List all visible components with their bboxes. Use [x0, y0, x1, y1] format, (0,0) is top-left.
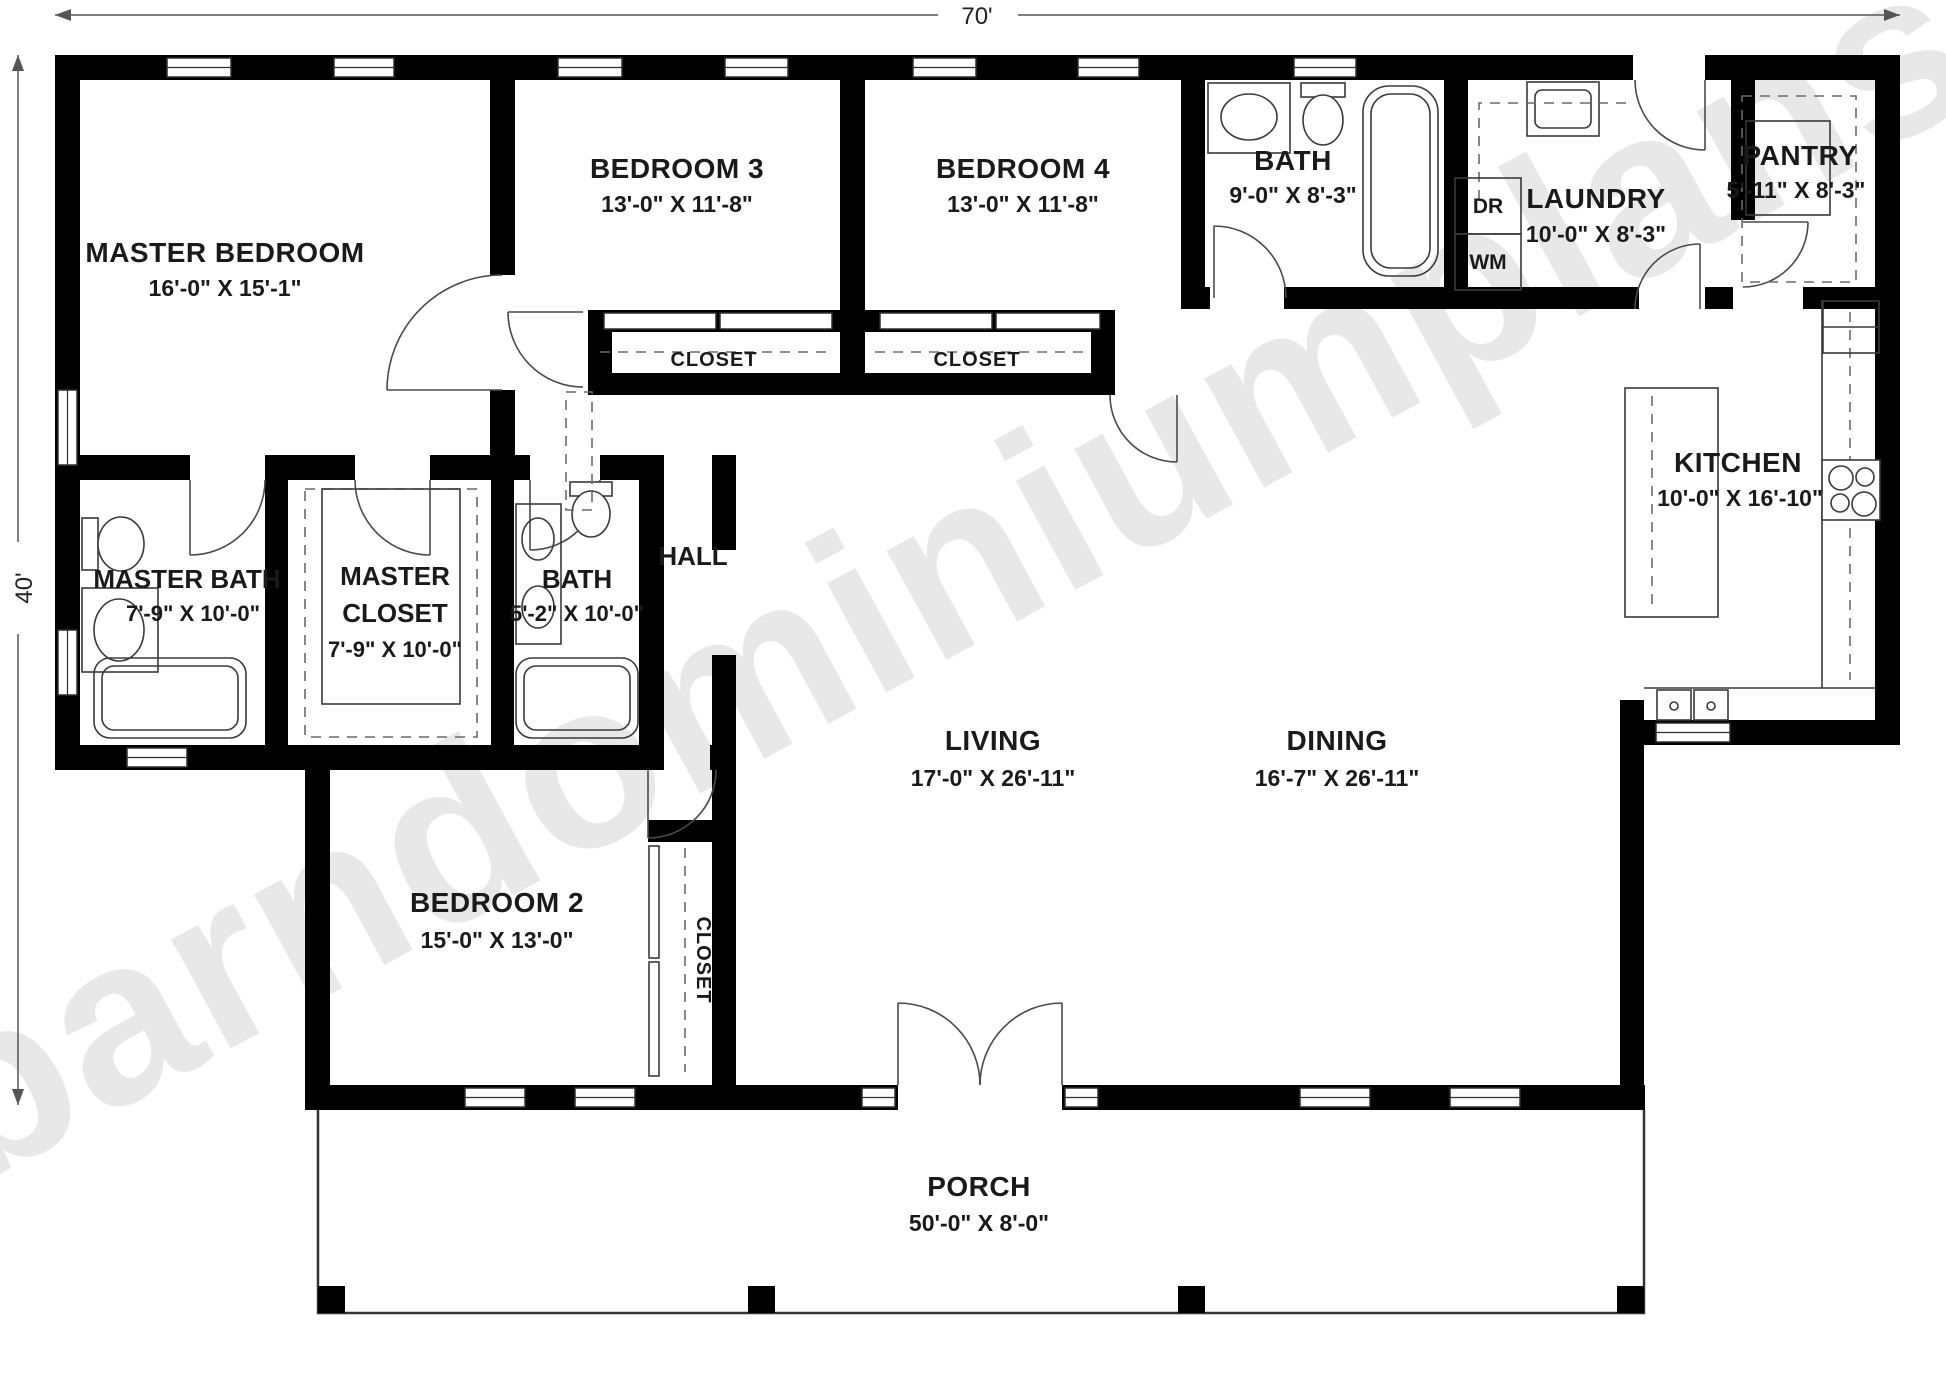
room-label-pantry: PANTRY	[1743, 140, 1858, 171]
closet-label-b2: CLOSET	[692, 916, 714, 1003]
window	[465, 1088, 525, 1107]
sliding-door-panel	[604, 313, 716, 329]
dim-label-width: 70'	[961, 3, 992, 30]
room-label-bedroom-4: BEDROOM 4	[936, 153, 1110, 184]
wall-bath-laundry	[1444, 80, 1468, 309]
sink-basin	[1221, 94, 1277, 140]
window	[167, 58, 231, 77]
floor-plan-drawing: barndominiumplans.com 70' 40'	[0, 0, 1946, 1373]
bathtub-inner	[102, 666, 238, 730]
room-dims-bath-2: 5'-2" X 10'-0"	[510, 601, 644, 626]
window	[58, 630, 77, 695]
dryer-label: DR	[1473, 195, 1503, 218]
room-dims-bedroom-4: 13'-0" X 11'-8"	[947, 191, 1099, 217]
room-label-living: LIVING	[945, 725, 1041, 756]
window	[1300, 1088, 1370, 1107]
room-label-laundry: LAUNDRY	[1526, 183, 1665, 214]
wall-hall-living-a	[712, 455, 736, 550]
room-dims-bath: 9'-0" X 8'-3"	[1229, 182, 1356, 208]
room-dims-kitchen: 10'-0" X 16'-10"	[1657, 485, 1823, 511]
room-dims-dining: 16'-7" X 26'-11"	[1255, 765, 1419, 791]
toilet-bowl	[572, 491, 610, 537]
room-label-master-bedroom: MASTER BEDROOM	[85, 237, 364, 268]
dim-label-depth: 40'	[11, 572, 38, 603]
window	[862, 1088, 895, 1107]
room-label-dining: DINING	[1287, 725, 1388, 756]
room-label-bedroom-2: BEDROOM 2	[410, 887, 584, 918]
porch-post	[1617, 1286, 1644, 1313]
closet-shelf	[322, 489, 460, 704]
sink-basin	[522, 518, 554, 560]
kitchen-sink-left	[1657, 690, 1691, 720]
toilet-tank	[82, 518, 98, 570]
wall-right	[1875, 55, 1900, 745]
wall-master-right-a	[490, 80, 515, 275]
wall-bath-bottom-a	[1181, 287, 1210, 309]
porch-post	[1178, 1286, 1205, 1313]
window	[913, 58, 976, 77]
door-bedroom3	[508, 312, 583, 387]
wall-closet-b3-bottom	[588, 373, 840, 395]
room-dims-master-bath: 7'-9" X 10'-0"	[126, 601, 260, 626]
sliding-door-panel	[720, 313, 832, 329]
window	[334, 58, 394, 77]
room-label-master-bath: MASTER BATH	[93, 564, 280, 594]
door-master-bedroom	[387, 275, 502, 390]
room-dims-laundry: 10'-0" X 8'-3"	[1526, 221, 1666, 247]
wall-mbath-mcloset	[265, 480, 288, 745]
floor-plan-page: barndominiumplans.com 70' 40'	[0, 0, 1946, 1373]
window	[127, 748, 187, 767]
room-dims-pantry: 5'-11" X 8'-3"	[1727, 177, 1866, 203]
closet-b4-fittings	[875, 313, 1100, 352]
room-label-kitchen: KITCHEN	[1674, 447, 1802, 478]
door-master-bath	[190, 480, 265, 555]
window	[575, 1088, 635, 1107]
room-label-hall: HALL	[658, 541, 727, 571]
dim-arrow-top	[12, 55, 24, 71]
room-label-bath: BATH	[1254, 145, 1332, 176]
wall-laundry-stub	[1705, 287, 1733, 309]
wall-corner-b2	[710, 745, 736, 770]
toilet-bowl	[98, 517, 144, 571]
wall-master-bottom-b	[265, 455, 355, 480]
room-label-bath-2: BATH	[542, 564, 612, 594]
closet-label-b3: CLOSET	[670, 349, 757, 371]
wall-b3-b4	[840, 80, 865, 395]
porch-post	[318, 1286, 345, 1313]
wall-closet-b4-bottom	[865, 373, 1115, 395]
wall-living-bedroom2	[712, 770, 736, 1110]
window	[58, 390, 77, 465]
room-dims-porch: 50'-0" X 8'-0"	[909, 1210, 1049, 1236]
closet-b3-fittings	[600, 313, 832, 352]
window	[558, 58, 622, 77]
closet-b2-fittings	[649, 846, 685, 1076]
sliding-door-panel	[880, 313, 992, 329]
room-dims-master-closet: 7'-9" X 10'-0"	[328, 637, 462, 662]
window	[1450, 1088, 1520, 1107]
wall-hall-living-b	[712, 655, 736, 745]
wall-top-right	[1705, 55, 1900, 80]
window	[1065, 1088, 1098, 1107]
bathtub	[94, 658, 246, 738]
washer-label: WM	[1469, 251, 1506, 274]
window	[1294, 58, 1356, 77]
sliding-door-panel	[649, 962, 659, 1076]
wall-top-left	[55, 55, 1633, 80]
wall-pantry-bottom	[1803, 287, 1876, 309]
wall-b4-bath	[1181, 80, 1205, 298]
room-dims-living: 17'-0" X 26'-11"	[911, 765, 1075, 791]
stove	[1822, 460, 1880, 520]
room-dims-master-bedroom: 16'-0" X 15'-1"	[149, 275, 302, 301]
wall-bath-bottom-b	[1284, 287, 1444, 309]
room-label-master-closet-line2: CLOSET	[342, 598, 448, 628]
master-bath-fixtures	[82, 517, 246, 738]
room-dims-bedroom-2: 15'-0" X 13'-0"	[421, 927, 574, 953]
porch-post	[748, 1286, 775, 1313]
window	[1078, 58, 1139, 77]
wall-dining-right	[1620, 700, 1644, 1110]
window	[1656, 723, 1730, 742]
dim-arrow-left	[55, 9, 71, 21]
door-french-entry	[898, 1003, 1062, 1085]
toilet-bowl	[1303, 95, 1343, 145]
room-label-master-closet-line1: MASTER	[340, 561, 450, 591]
door-master-closet	[355, 480, 430, 555]
room-label-porch: PORCH	[927, 1171, 1031, 1202]
room-label-bedroom-3: BEDROOM 3	[590, 153, 764, 184]
sliding-door-panel	[649, 846, 659, 958]
room-dims-bedroom-3: 13'-0" X 11'-8"	[601, 191, 753, 217]
closet-label-b4: CLOSET	[933, 349, 1020, 371]
window	[725, 58, 788, 77]
kitchen-sink-right	[1694, 690, 1728, 720]
wall-bedroom2-left	[305, 745, 330, 1110]
wall-master-bottom-c	[430, 455, 530, 480]
sliding-door-panel	[996, 313, 1100, 329]
